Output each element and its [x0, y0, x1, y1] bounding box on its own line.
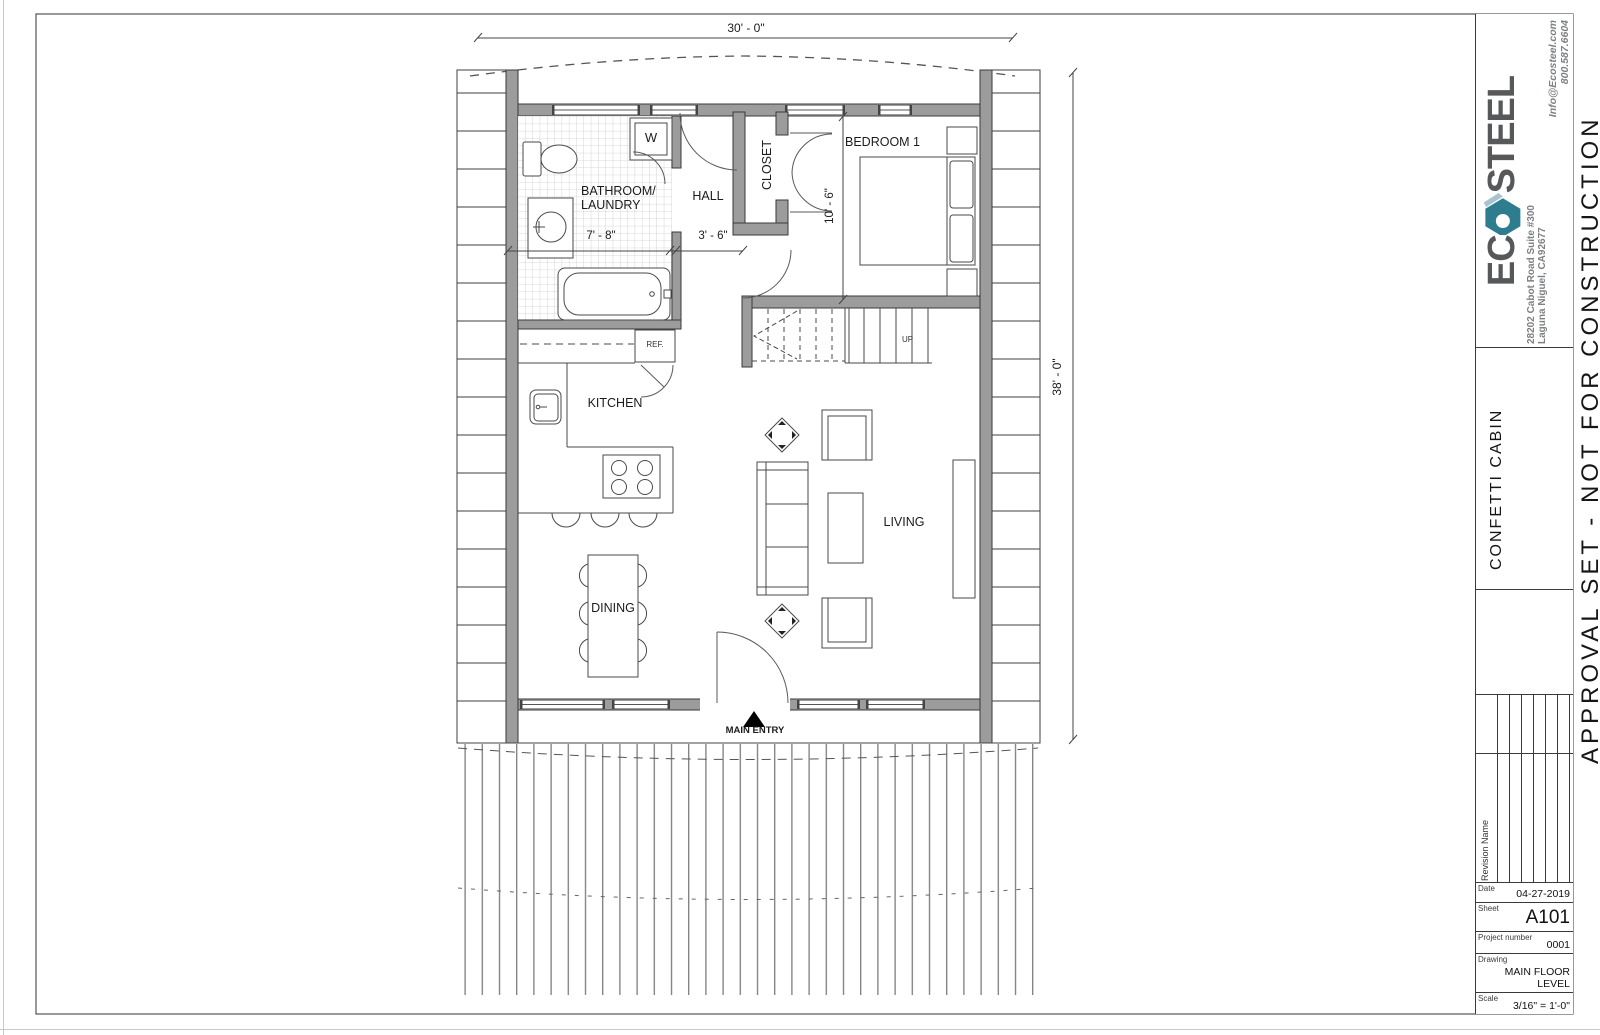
title-block: EC STEEL 28202 Cabot Road Suite #300 Lag… — [1475, 14, 1573, 1014]
label-refrigerator: REF. — [640, 340, 670, 349]
siding-band-left — [457, 70, 506, 743]
deck — [457, 743, 1040, 995]
room-label-closet: CLOSET — [760, 125, 776, 205]
floor-plan-drawing — [0, 0, 1600, 1035]
date-field: Date 04-27-2019 — [1476, 883, 1573, 903]
siding-band-right — [992, 70, 1040, 743]
project-name: CONFETTI CABIN — [1488, 350, 1510, 588]
bathtub — [558, 268, 671, 320]
entry-door-swing — [717, 632, 788, 703]
dimension-hall-width: 3' - 6" — [693, 230, 733, 242]
closet-door-left-swing — [792, 134, 832, 173]
room-label-bedroom: BEDROOM 1 — [845, 135, 920, 149]
bathroom-sink — [528, 198, 573, 258]
side-table-bottom — [765, 604, 799, 638]
label-washer: W — [641, 130, 661, 145]
date-value: 04-27-2019 — [1516, 888, 1570, 900]
room-label-bathroom: BATHROOM/ LAUNDRY — [581, 184, 656, 212]
armchair-top — [822, 410, 872, 460]
entry-door-opening — [700, 698, 790, 712]
title-block-logo-cell: EC STEEL 28202 Cabot Road Suite #300 Lag… — [1476, 14, 1573, 348]
project-number-field: Project number 0001 — [1476, 932, 1573, 954]
nightstand-bottom — [947, 269, 977, 296]
toilet — [523, 142, 577, 176]
room-label-dining: DINING — [585, 601, 641, 615]
bar-stools — [552, 513, 657, 527]
kitchen-sink — [530, 390, 561, 424]
room-label-hall: HALL — [688, 189, 728, 203]
project-number: 0001 — [1547, 939, 1570, 951]
hex-nut-icon — [1480, 193, 1524, 235]
sofa — [757, 462, 808, 595]
dimension-overall-height: 38' - 0" — [1050, 340, 1066, 414]
sheet-field: Sheet A101 — [1476, 903, 1573, 932]
ecosteel-logo: EC STEEL — [1478, 16, 1526, 346]
company-contact: Info@Ecosteel.com 800.587.6604 — [1548, 16, 1571, 346]
dimension-bathroom-width: 7' - 8" — [578, 230, 624, 242]
drawing-field: Drawing MAIN FLOOR LEVEL — [1476, 954, 1573, 993]
empty-cell — [1476, 590, 1573, 695]
logo-text-steel: STEEL — [1482, 76, 1522, 193]
drawing-title: MAIN FLOOR LEVEL — [1490, 967, 1570, 990]
armchair-bottom — [822, 598, 872, 648]
revision-table: Revision Name — [1476, 695, 1573, 883]
media-console — [953, 460, 975, 598]
dimension-overall-width: 30' - 0" — [710, 21, 782, 35]
scale-field: Scale 3/16" = 1'-0" — [1476, 993, 1573, 1014]
label-up: UP — [902, 335, 913, 344]
coffee-table — [828, 493, 863, 563]
project-name-cell: CONFETTI CABIN — [1476, 348, 1573, 590]
approval-stamp: APPROVAL SET - NOT FOR CONSTRUCTION — [1577, 16, 1600, 1016]
company-address: 28202 Cabot Road Suite #300 Laguna Nigue… — [1526, 16, 1548, 346]
cooktop — [603, 455, 660, 498]
dining-table — [588, 555, 638, 677]
dimension-bedroom-height: 10' - 6" — [824, 175, 839, 237]
sheet-number: A101 — [1526, 907, 1570, 929]
drawing-sheet: BATHROOM/ LAUNDRY HALL CLOSET BEDROOM 1 … — [0, 0, 1600, 1035]
room-label-kitchen: KITCHEN — [585, 396, 645, 410]
revision-name-header: Revision Name — [1480, 757, 1497, 881]
room-label-living: LIVING — [878, 515, 930, 529]
nightstand-top — [947, 127, 977, 154]
hall-door-swing — [680, 113, 737, 170]
bedroom-door-swing — [743, 250, 791, 298]
roof-overhang-line — [470, 56, 1015, 76]
scale-value: 3/16" = 1'-0" — [1513, 1000, 1570, 1012]
side-table-top — [765, 418, 799, 452]
bed — [860, 157, 975, 265]
label-main-entry: MAIN ENTRY — [720, 725, 790, 736]
logo-text-ec: EC — [1482, 235, 1522, 286]
